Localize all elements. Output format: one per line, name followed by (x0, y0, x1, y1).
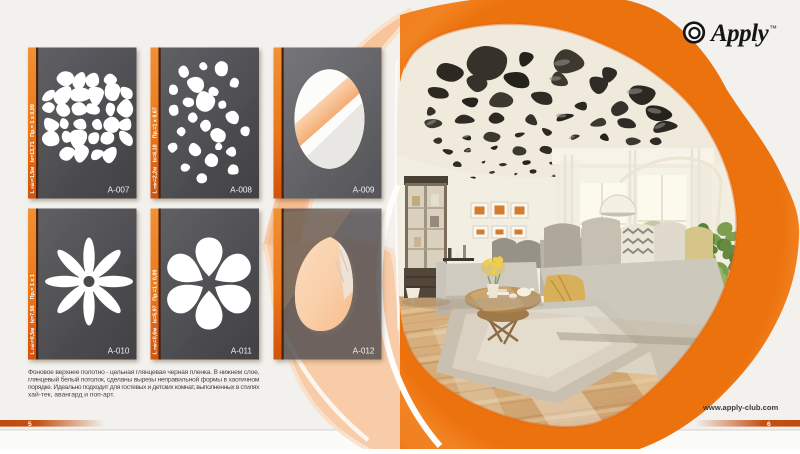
svg-text:www.apply-club.com: www.apply-club.com (702, 403, 778, 412)
svg-text:A-011: A-011 (231, 347, 253, 356)
svg-text:глянцевый белый потолок, сдела: глянцевый белый потолок, сделаны вырезы … (28, 376, 260, 384)
svg-text:порядке. Идеально подходит для: порядке. Идеально подходит для гостевых … (28, 384, 260, 391)
svg-text:A-012: A-012 (353, 347, 375, 356)
svg-text:™: ™ (769, 24, 777, 33)
svg-text:5: 5 (28, 421, 32, 428)
svg-text:хай-тек, авангард и поп-арт.: хай-тек, авангард и поп-арт. (28, 390, 115, 398)
svg-text:L min=0,5м lк=7,98 Пр.= 1: L min=0,5м lк=7,98 Пр.= 1 x 1 (30, 274, 36, 354)
svg-text:A-008: A-008 (230, 186, 252, 195)
svg-text:Фоновое верхнее полотно - цель: Фоновое верхнее полотно - цельная глянце… (28, 369, 260, 376)
svg-text:6: 6 (767, 421, 771, 428)
svg-text:A-010: A-010 (108, 347, 130, 356)
svg-text:L min=0,6м lк=5,97 Пр.=1 x: L min=0,6м lк=5,97 Пр.=1 x 0,89 (153, 270, 159, 355)
svg-text:L min=1,5м lк=13,71 Пр.= 1: L min=1,5м lк=13,71 Пр.= 1 x 0,99 (30, 104, 36, 193)
svg-text:L min=2,2м lк=6,18 Пр.=1: L min=2,2м lк=6,18 Пр.=1 x 0,67 (153, 107, 159, 193)
svg-text:Apply: Apply (709, 20, 770, 47)
svg-text:A-007: A-007 (108, 186, 130, 195)
svg-text:A-009: A-009 (353, 186, 375, 195)
